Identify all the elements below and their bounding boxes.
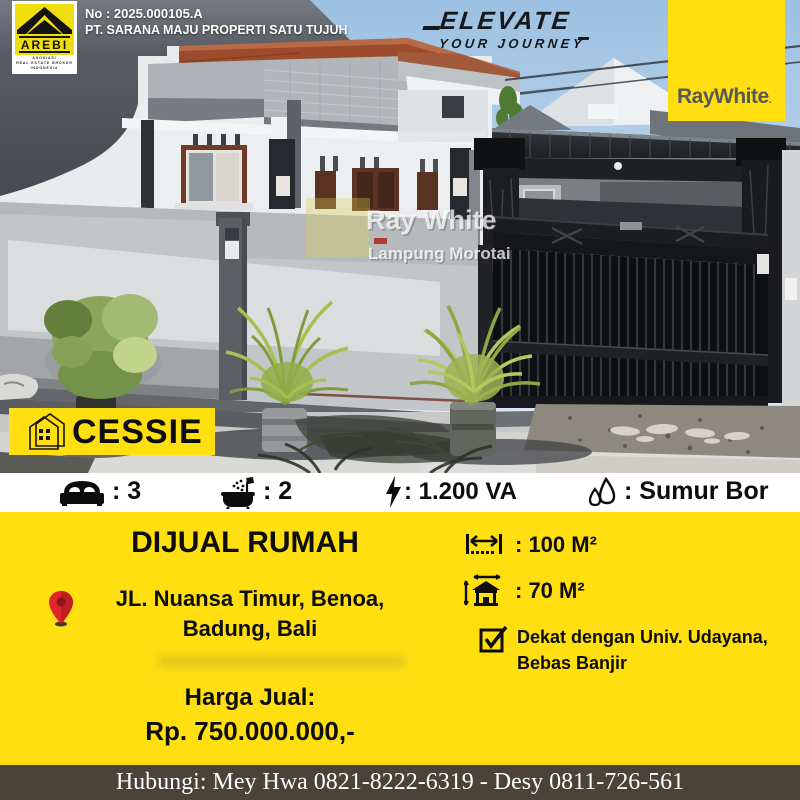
svg-text:Ray White: Ray White: [366, 205, 497, 235]
svg-text:Lampung Morotai: Lampung Morotai: [368, 244, 511, 263]
svg-text:AREBI: AREBI: [21, 38, 68, 52]
